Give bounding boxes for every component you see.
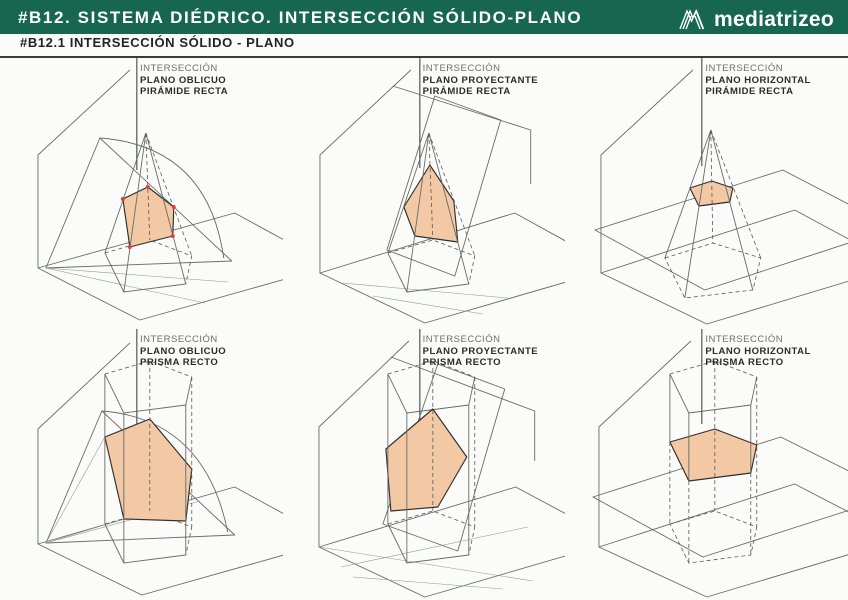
intersection-section — [386, 409, 467, 511]
panel-proyectante-prisma: INTERSECCIÓN PLANO PROYECTANTE PRISMA RE… — [283, 329, 566, 600]
diagram-horizontal-piramide — [565, 58, 848, 329]
mediatrizeo-m-icon — [679, 9, 707, 31]
prism-bottom-visible — [105, 524, 186, 563]
vertical-plane-edge — [393, 86, 531, 184]
subheader-bar: #B12.1 INTERSECCIÓN SÓLIDO - PLANO — [0, 34, 848, 56]
brand-name: mediatrizeo — [714, 8, 834, 32]
prism-top-visible — [388, 374, 475, 413]
construction-lines — [319, 527, 533, 589]
pyramid-base-hidden — [665, 243, 761, 298]
intersection-section — [105, 419, 192, 521]
diagram-proyectante-piramide — [283, 58, 566, 329]
worksheet-page: #B12. SISTEMA DIÉDRICO. INTERSECCIÓN SÓL… — [0, 0, 848, 600]
prism-top-visible — [670, 374, 757, 413]
intersection-section — [690, 181, 733, 206]
diagram-grid: INTERSECCIÓN PLANO OBLICUO PIRÁMIDE RECT… — [0, 58, 848, 600]
vertical-plane — [38, 70, 130, 268]
diagram-proyectante-prisma — [283, 329, 566, 600]
intersection-section — [670, 429, 757, 481]
prism-top-hidden — [670, 361, 757, 377]
diagram-horizontal-prisma — [565, 329, 848, 600]
prism-bottom-hidden — [388, 511, 475, 555]
panel-proyectante-piramide: INTERSECCIÓN PLANO PROYECTANTE PIRÁMIDE … — [283, 58, 566, 329]
prism-top-visible — [105, 374, 192, 413]
horizontal-plane — [599, 484, 848, 597]
construction-lines — [343, 283, 508, 314]
prism-bottom-hidden — [670, 511, 757, 563]
pyramid-edges-visible — [665, 130, 753, 298]
panel-horizontal-piramide: INTERSECCIÓN PLANO HORIZONTAL PIRÁMIDE R… — [565, 58, 848, 329]
diagram-oblicuo-prisma — [0, 329, 283, 600]
diagram-oblicuo-piramide — [0, 58, 283, 329]
pyramid-base-hidden — [105, 240, 192, 284]
section-subtitle: #B12.1 INTERSECCIÓN SÓLIDO - PLANO — [20, 35, 295, 50]
vertical-plane — [320, 70, 411, 273]
panel-oblicuo-piramide: INTERSECCIÓN PLANO OBLICUO PIRÁMIDE RECT… — [0, 58, 283, 329]
prism-top-hidden — [105, 361, 192, 377]
vertical-plane — [601, 70, 693, 273]
pyramid-base-hidden — [388, 240, 475, 284]
horizontal-plane — [601, 210, 848, 324]
panel-horizontal-prisma: INTERSECCIÓN PLANO HORIZONTAL PRISMA REC… — [565, 329, 848, 600]
page-title: #B12. SISTEMA DIÉDRICO. INTERSECCIÓN SÓL… — [18, 0, 582, 35]
prism-top-hidden — [388, 361, 475, 377]
pyramid-base-visible — [105, 253, 186, 292]
pyramid-base-visible — [388, 253, 469, 292]
panel-oblicuo-prisma: INTERSECCIÓN PLANO OBLICUO PRISMA RECTO — [0, 329, 283, 600]
